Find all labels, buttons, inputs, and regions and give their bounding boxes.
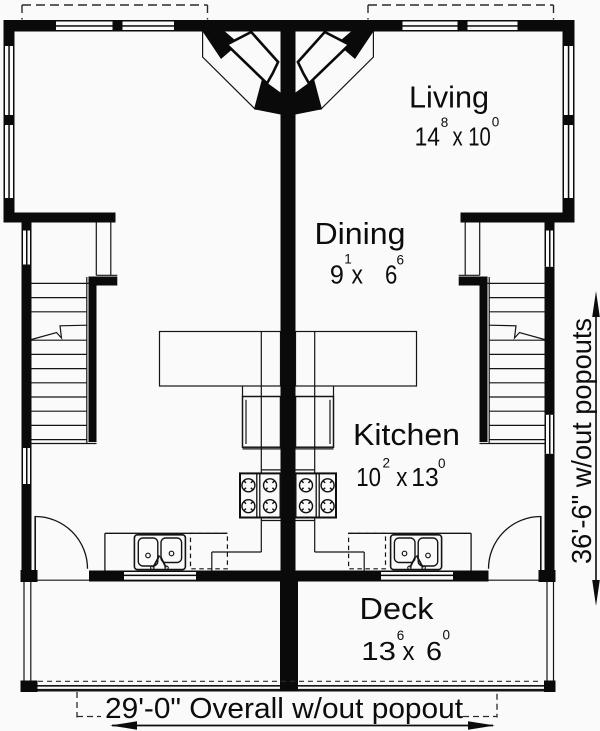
svg-text:13: 13 <box>411 464 439 492</box>
svg-text:14: 14 <box>415 124 440 152</box>
svg-text:0: 0 <box>443 628 451 643</box>
svg-text:Living: Living <box>409 80 489 115</box>
svg-text:x: x <box>403 638 415 666</box>
svg-text:x: x <box>352 262 364 290</box>
svg-text:Kitchen: Kitchen <box>353 417 460 452</box>
svg-text:9: 9 <box>330 262 344 290</box>
svg-text:Deck: Deck <box>360 591 435 626</box>
svg-text:13: 13 <box>361 638 396 666</box>
svg-text:6: 6 <box>397 253 405 268</box>
svg-text:6: 6 <box>385 262 397 290</box>
svg-text:8: 8 <box>441 115 449 130</box>
svg-text:0: 0 <box>438 456 446 471</box>
svg-text:0: 0 <box>492 115 500 130</box>
svg-text:x: x <box>396 464 407 492</box>
svg-text:x 10: x 10 <box>453 124 491 152</box>
svg-text:6: 6 <box>426 638 442 666</box>
svg-text:29'-0" Overall w/out popout: 29'-0" Overall w/out popout <box>105 693 463 725</box>
svg-text:Dining: Dining <box>315 216 406 251</box>
svg-text:10: 10 <box>356 464 381 492</box>
svg-text:36'-6" w/out popouts: 36'-6" w/out popouts <box>566 318 597 564</box>
svg-text:2: 2 <box>383 456 391 471</box>
